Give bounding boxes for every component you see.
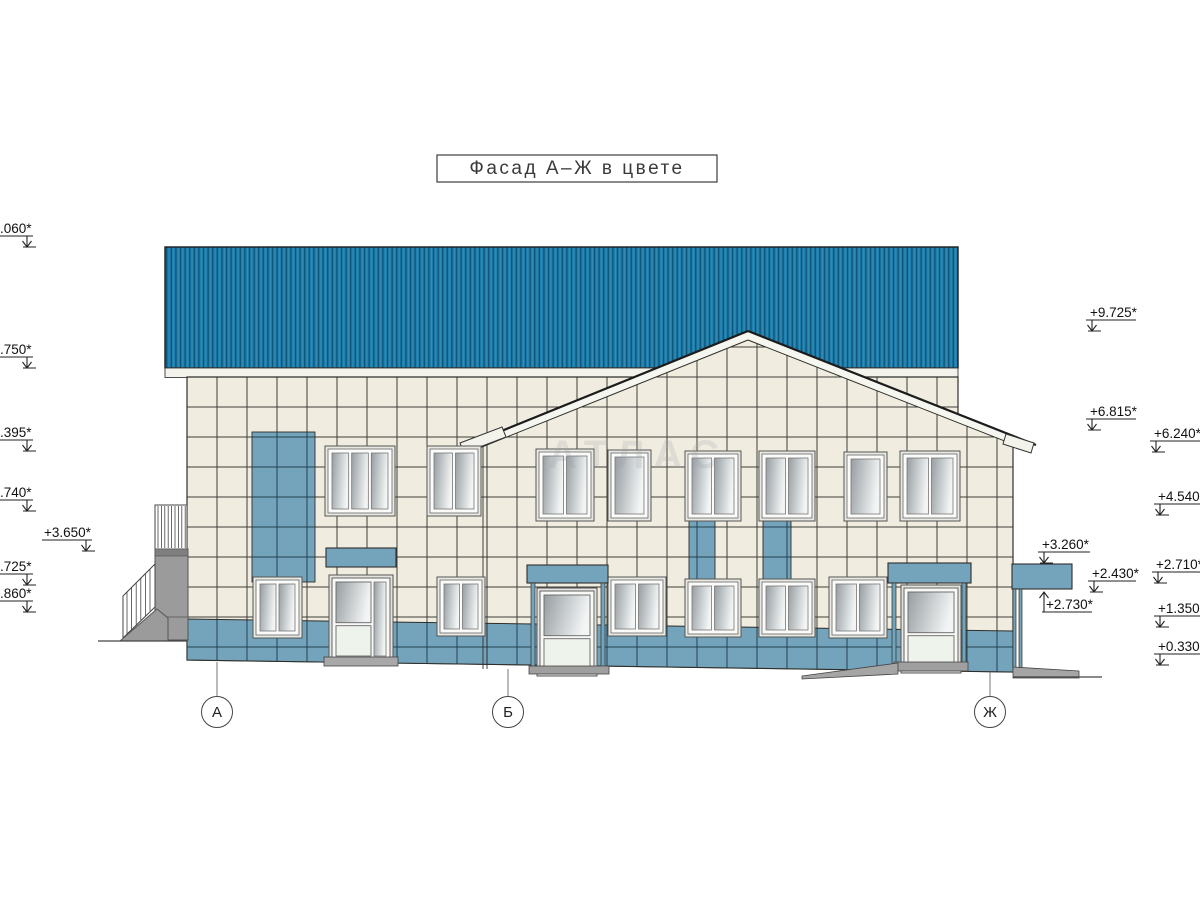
elevation-mark-arrow xyxy=(1150,441,1200,452)
door-glass xyxy=(908,592,954,633)
roof-corrugated-band xyxy=(165,247,958,368)
elevation-mark-arrow xyxy=(0,574,36,585)
elevation-mark-arrow xyxy=(0,357,36,368)
elevation-mark-label: .060* xyxy=(0,221,32,236)
accent-tile-band xyxy=(252,432,315,582)
window xyxy=(829,577,887,638)
window-pane xyxy=(907,458,929,514)
side-curb xyxy=(1013,667,1079,678)
title-block: Фасад А–Ж в цвете xyxy=(437,155,717,182)
elevation-mark-label: +2.710* xyxy=(1156,557,1200,572)
canopy-post xyxy=(1019,589,1022,669)
canopy-board xyxy=(326,548,396,567)
accent-tile-band xyxy=(689,517,715,583)
door xyxy=(537,588,597,676)
canopy-post xyxy=(1013,589,1016,669)
window-pane xyxy=(615,584,636,629)
facade-elevation-drawing: АТЛАС Фасад А–Ж в цвете А Б Ж .060* .750… xyxy=(0,0,1200,900)
window-pane xyxy=(766,458,786,514)
window-pane xyxy=(789,586,809,630)
door-glass xyxy=(544,595,590,636)
window xyxy=(900,451,960,521)
canopy-board xyxy=(1012,564,1072,589)
window-pane xyxy=(789,458,809,514)
elevation-mark-label: +3.650* xyxy=(44,525,92,540)
window-pane xyxy=(260,584,276,631)
axis-label-b: Б xyxy=(503,704,513,721)
elevation-mark-label: +6.815* xyxy=(1090,404,1138,419)
window-pane xyxy=(860,584,881,631)
elevation-mark-arrow xyxy=(1154,616,1200,627)
stair-landing-edge xyxy=(155,549,188,556)
elevation-mark-label: +6.240* xyxy=(1154,426,1200,441)
elevation-mark-arrow xyxy=(0,601,36,612)
elevation-mark-label: +9.725* xyxy=(1090,305,1138,320)
canopy-post xyxy=(892,583,896,669)
door-threshold xyxy=(529,666,609,674)
elevation-mark-label: .395* xyxy=(0,425,32,440)
elevation-mark-label: .725* xyxy=(0,559,32,574)
window-pane xyxy=(766,586,786,630)
elevation-mark-arrow xyxy=(1088,581,1136,592)
door-sill xyxy=(324,657,398,666)
window xyxy=(759,579,815,637)
elevation-mark-label: +1.350* xyxy=(1158,601,1200,616)
elevation-mark-label: +0.330* xyxy=(1158,639,1200,654)
door-threshold xyxy=(894,662,968,671)
exterior-stair xyxy=(120,505,188,641)
canopy-post xyxy=(531,583,535,671)
window-pane xyxy=(456,453,475,509)
axis-label-a: А xyxy=(212,704,222,721)
window-pane xyxy=(851,459,880,514)
canopy-board xyxy=(527,565,608,583)
window xyxy=(685,579,741,637)
elevation-mark-arrow xyxy=(0,236,36,247)
elevation-mark-label: .740* xyxy=(0,485,32,500)
door-panel xyxy=(544,639,590,669)
door xyxy=(901,585,961,673)
elevation-mark-label: +2.430* xyxy=(1092,566,1140,581)
elevation-mark-arrow xyxy=(1154,504,1200,515)
watermark-text: АТЛАС xyxy=(548,433,728,477)
axis-label-zh: Ж xyxy=(983,704,997,721)
window-pane xyxy=(932,458,954,514)
window xyxy=(253,577,302,638)
elevation-mark-arrow xyxy=(0,440,36,451)
elevation-mark-arrow xyxy=(1038,552,1090,563)
window-pane xyxy=(279,584,295,631)
door xyxy=(329,575,393,663)
door-sidelight xyxy=(374,582,386,656)
window-pane xyxy=(332,453,349,509)
drawing-sheet: АТЛАС Фасад А–Ж в цвете А Б Ж .060* .750… xyxy=(0,0,1200,900)
window-pane xyxy=(352,453,369,509)
window xyxy=(427,446,481,516)
window-pane xyxy=(444,584,460,629)
window xyxy=(608,577,666,636)
window-pane xyxy=(836,584,857,631)
window-pane xyxy=(371,453,388,509)
window-pane xyxy=(692,586,712,630)
elevation-mark-arrow xyxy=(42,540,95,551)
elevation-mark-label: +3.260* xyxy=(1042,537,1090,552)
elevation-mark-label: .860* xyxy=(0,586,32,601)
window-pane xyxy=(639,584,660,629)
canopy-board xyxy=(888,563,971,583)
window xyxy=(437,577,485,636)
elevation-mark-arrow xyxy=(0,500,36,511)
elevation-mark-arrow xyxy=(1086,419,1136,430)
accent-tile-band xyxy=(763,517,791,583)
window xyxy=(759,451,815,521)
door-panel xyxy=(336,626,371,656)
elevation-mark-arrow xyxy=(1086,320,1136,331)
elevation-mark-label: +4.540* xyxy=(1158,489,1200,504)
window xyxy=(844,452,887,521)
window xyxy=(325,446,395,516)
elevation-mark-label: .750* xyxy=(0,342,32,357)
door-panel xyxy=(908,636,954,666)
window-pane xyxy=(715,586,735,630)
window-pane xyxy=(434,453,453,509)
elevation-mark-label: +2.730* xyxy=(1046,597,1094,612)
drawing-title: Фасад А–Ж в цвете xyxy=(469,158,684,179)
elevation-mark-arrow xyxy=(1154,654,1200,665)
window-pane xyxy=(463,584,479,629)
door-glass xyxy=(336,582,371,623)
canopy-post xyxy=(601,583,605,671)
canopy-post xyxy=(962,583,966,669)
elevation-mark-arrow xyxy=(1152,572,1200,583)
